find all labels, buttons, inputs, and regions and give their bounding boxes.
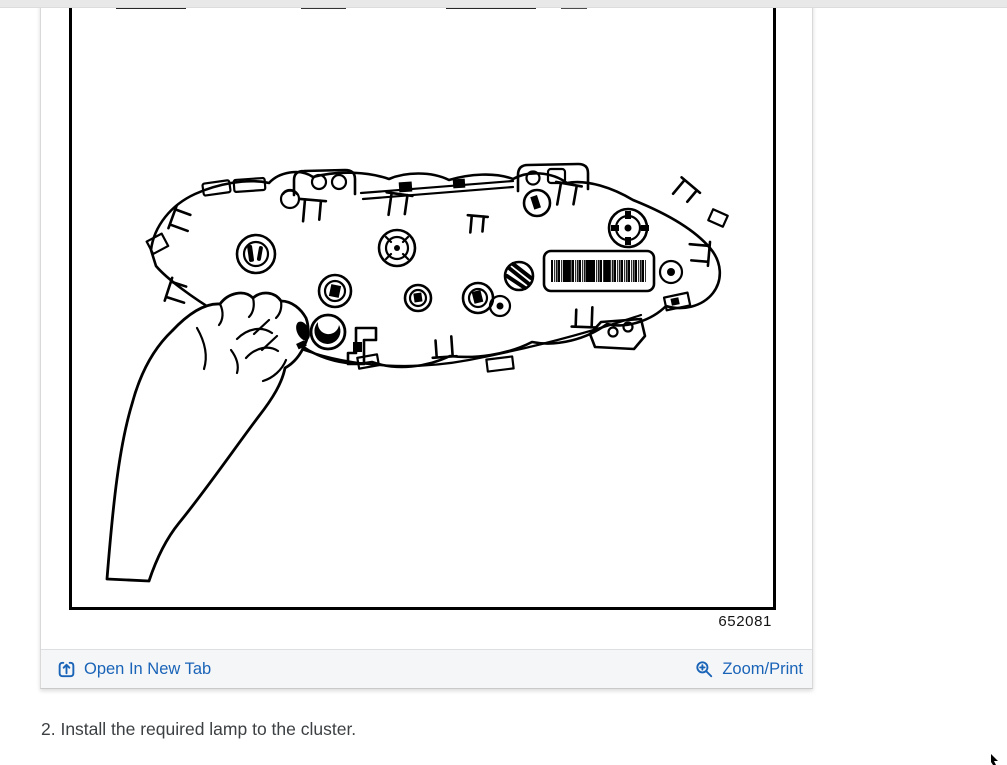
open-in-new-tab-icon xyxy=(57,660,76,679)
zoom-print-label: Zoom/Print xyxy=(722,660,803,679)
figure-number: 652081 xyxy=(718,613,772,630)
top-divider-strip xyxy=(0,0,1007,8)
magnifier-plus-icon xyxy=(695,660,714,679)
cluster-illustration xyxy=(41,0,814,648)
figure-card: 652081 Open In New Tab Zoom/Print xyxy=(40,0,813,689)
instruction-step: 2. Install the required lamp to the clus… xyxy=(41,719,356,740)
open-in-new-tab-link[interactable]: Open In New Tab xyxy=(57,660,211,679)
mouse-cursor xyxy=(987,753,999,765)
figure-toolbar: Open In New Tab Zoom/Print xyxy=(41,649,812,688)
figure-image-area: 652081 xyxy=(41,0,812,648)
open-in-new-tab-label: Open In New Tab xyxy=(84,660,211,679)
zoom-print-link[interactable]: Zoom/Print xyxy=(695,660,803,679)
